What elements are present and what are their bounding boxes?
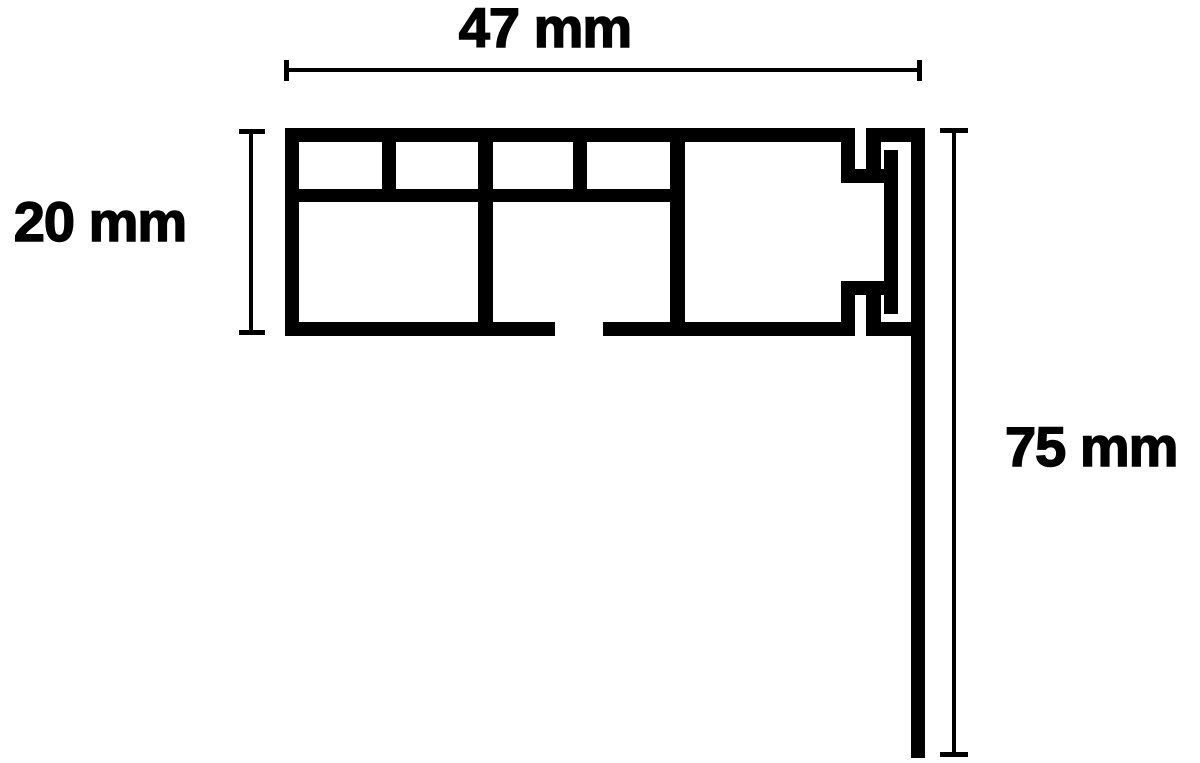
dimension-tick-height-bottom bbox=[239, 330, 265, 335]
clip-stub-bottom bbox=[841, 295, 855, 322]
profile-bottom-wall-mid bbox=[603, 322, 855, 336]
dimension-tick-width-left bbox=[284, 60, 289, 81]
profile-bottom-wall-left bbox=[285, 322, 555, 336]
profile-left-wall bbox=[285, 128, 299, 336]
profile-dimension-diagram: 47 mm 20 mm 75 mm bbox=[0, 0, 1200, 763]
dimension-label-height: 20 mm bbox=[5, 194, 195, 250]
dimension-tick-width-right bbox=[917, 60, 922, 81]
dimension-label-drop: 75 mm bbox=[1005, 419, 1177, 475]
inner-shelf bbox=[285, 189, 685, 202]
dimension-line-width bbox=[286, 68, 920, 72]
dimension-line-drop bbox=[952, 130, 956, 756]
main-divider-right bbox=[670, 142, 685, 322]
profile-top-wall bbox=[285, 128, 855, 142]
clip-leg-bottom bbox=[866, 295, 881, 322]
main-divider-left bbox=[478, 142, 493, 322]
dimension-label-width: 47 mm bbox=[459, 0, 631, 56]
dimension-tick-drop-bottom bbox=[940, 752, 968, 757]
dimension-line-height bbox=[249, 130, 253, 334]
clip-leg-top bbox=[866, 142, 881, 169]
clip-stub-top bbox=[841, 142, 855, 169]
dimension-tick-drop-top bbox=[940, 128, 968, 133]
dimension-tick-height-top bbox=[239, 129, 265, 134]
profile-right-wall-drop-leg bbox=[911, 128, 925, 758]
clip-inner-column bbox=[884, 150, 898, 314]
